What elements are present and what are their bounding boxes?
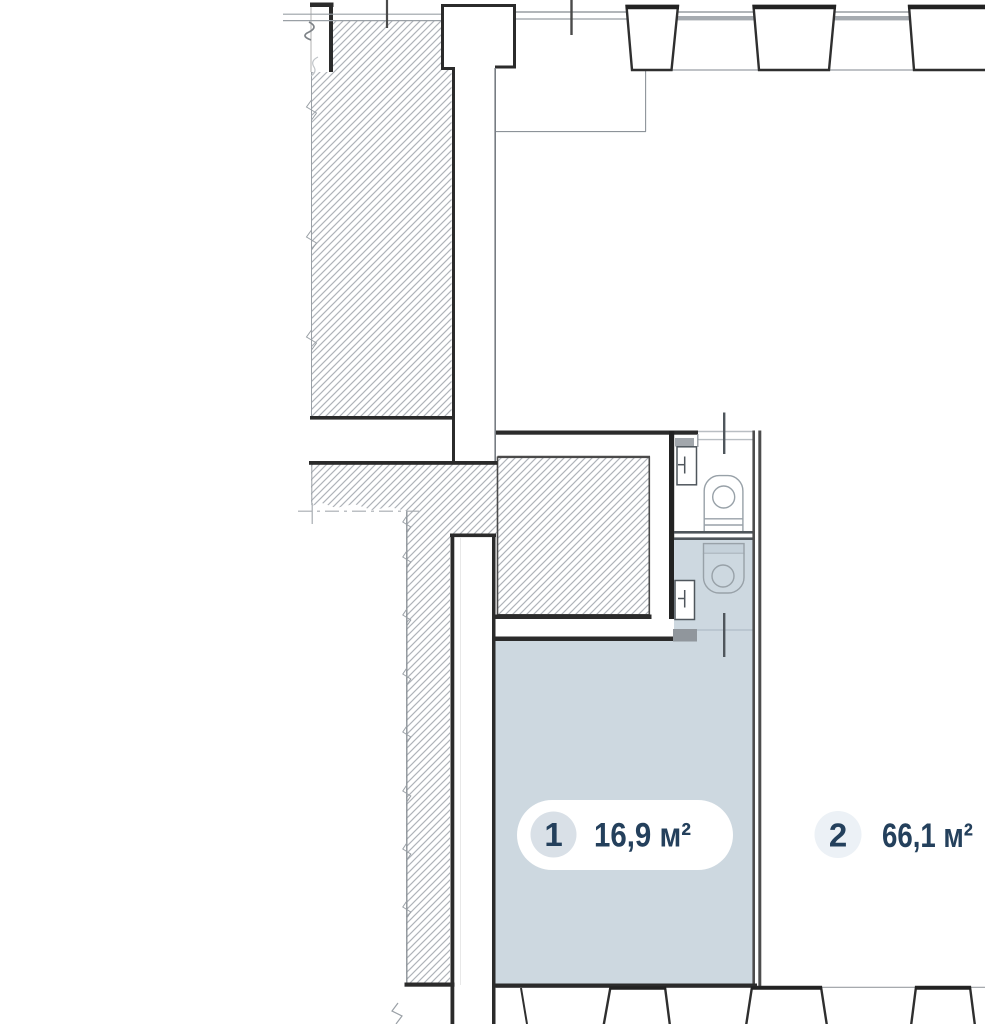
svg-text:2: 2: [829, 817, 847, 854]
svg-text:1: 1: [544, 816, 562, 853]
svg-text:16,9 м²: 16,9 м²: [594, 817, 691, 855]
svg-text:66,1 м²: 66,1 м²: [882, 817, 973, 855]
